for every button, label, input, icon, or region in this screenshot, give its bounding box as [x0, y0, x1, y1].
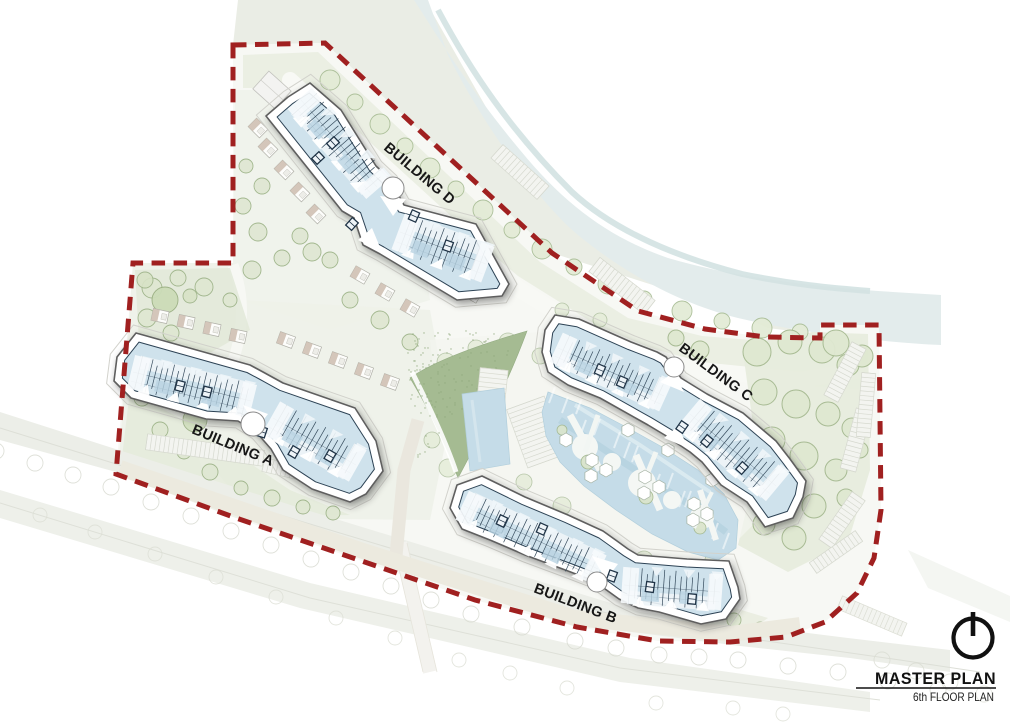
svg-text:MASTER PLAN: MASTER PLAN	[875, 669, 996, 688]
svg-text:6th FLOOR PLAN: 6th FLOOR PLAN	[913, 690, 994, 704]
